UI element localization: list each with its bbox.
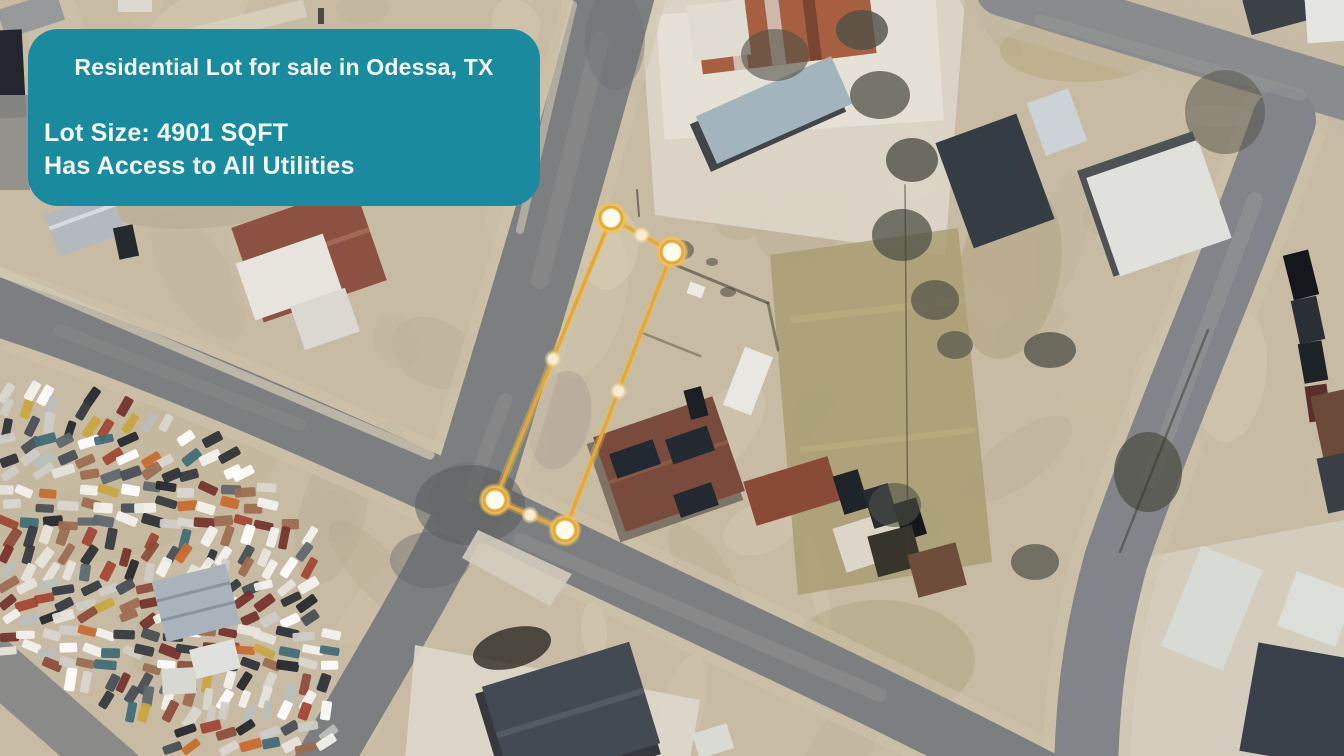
tree-canopy xyxy=(1011,544,1059,580)
junkyard-car xyxy=(234,487,256,498)
junkyard-car xyxy=(93,502,113,514)
lot-midpoint-marker-core xyxy=(548,354,558,364)
gray-pad-left xyxy=(0,95,30,190)
tree-canopy xyxy=(836,10,888,50)
tree-canopy xyxy=(937,331,973,359)
junkyard-car xyxy=(213,515,233,527)
junkyard-car xyxy=(59,625,81,636)
lot-vertex-marker xyxy=(557,522,574,539)
junkyard-car xyxy=(3,499,21,509)
junkyard-car xyxy=(292,632,315,642)
junkyard-car xyxy=(157,660,176,670)
lot-vertex-marker xyxy=(603,210,620,227)
tree-canopy xyxy=(850,71,910,119)
tree-canopy xyxy=(872,209,932,261)
tree-canopy xyxy=(886,138,938,182)
junkyard-car xyxy=(321,661,339,670)
junkyard-car xyxy=(59,642,77,652)
junkyard-car xyxy=(35,504,54,513)
white-object-top xyxy=(118,0,152,12)
lot-vertex-marker xyxy=(664,244,681,261)
lot-vertex-marker xyxy=(487,492,504,509)
junkyard-car xyxy=(16,631,35,639)
junkyard-car xyxy=(177,500,198,512)
junkyard-car xyxy=(80,485,99,496)
lot-midpoint-marker-core xyxy=(637,230,647,240)
lot-midpoint-marker-core xyxy=(614,386,624,396)
junkyard-shed-white xyxy=(161,667,196,695)
house-corner-white xyxy=(1304,0,1344,43)
tree-canopy xyxy=(1024,332,1076,368)
satellite-map: Residential Lot for sale in Odessa, TX L… xyxy=(0,0,1344,756)
listing-banner: Residential Lot for sale in Odessa, TX L… xyxy=(28,29,540,206)
tree-canopy xyxy=(911,280,959,320)
tree-canopy xyxy=(741,29,809,81)
junkyard-car xyxy=(257,482,277,492)
junkyard-car xyxy=(134,503,156,514)
junkyard-car xyxy=(101,648,120,658)
shrub xyxy=(706,258,718,266)
banner-utilities: Has Access to All Utilities xyxy=(44,150,524,183)
tree-canopy xyxy=(1185,70,1265,154)
junkyard-car xyxy=(94,659,117,670)
junkyard-car xyxy=(39,488,57,498)
junkyard-car xyxy=(177,488,194,498)
junkyard-car xyxy=(57,501,79,512)
junkyard-car xyxy=(113,630,135,640)
banner-title: Residential Lot for sale in Odessa, TX xyxy=(44,53,524,81)
tree-canopy xyxy=(1114,432,1182,512)
banner-lot-size: Lot Size: 4901 SQFT xyxy=(44,117,524,150)
tree-canopy xyxy=(869,483,921,527)
banner-details: Lot Size: 4901 SQFT Has Access to All Ut… xyxy=(44,117,524,183)
junkyard-car xyxy=(0,485,14,495)
utility-pole xyxy=(318,8,324,24)
lot-midpoint-marker-core xyxy=(525,510,535,520)
